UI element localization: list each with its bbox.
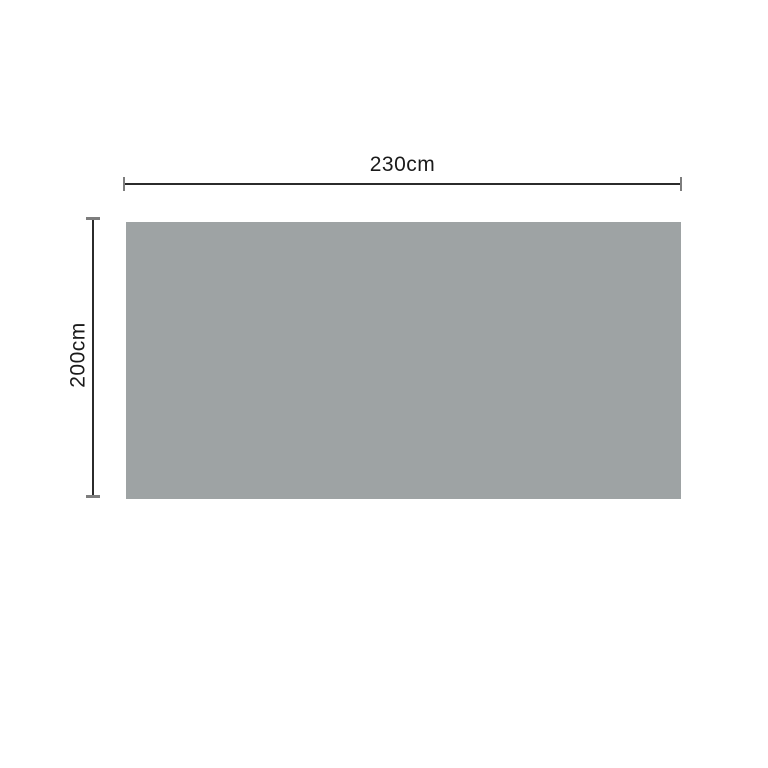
- height-dimension-bottom-tick: [86, 495, 100, 498]
- height-dimension-line: [92, 219, 94, 497]
- dimension-diagram: 230cm 200cm: [0, 0, 768, 768]
- width-dimension-label: 230cm: [124, 153, 681, 176]
- height-dimension-top-tick: [86, 217, 100, 220]
- height-dimension-label: 200cm: [66, 322, 89, 388]
- width-dimension-left-tick: [123, 177, 125, 191]
- width-dimension-right-tick: [680, 177, 682, 191]
- width-dimension-line: [124, 183, 681, 185]
- product-panel: [126, 222, 681, 499]
